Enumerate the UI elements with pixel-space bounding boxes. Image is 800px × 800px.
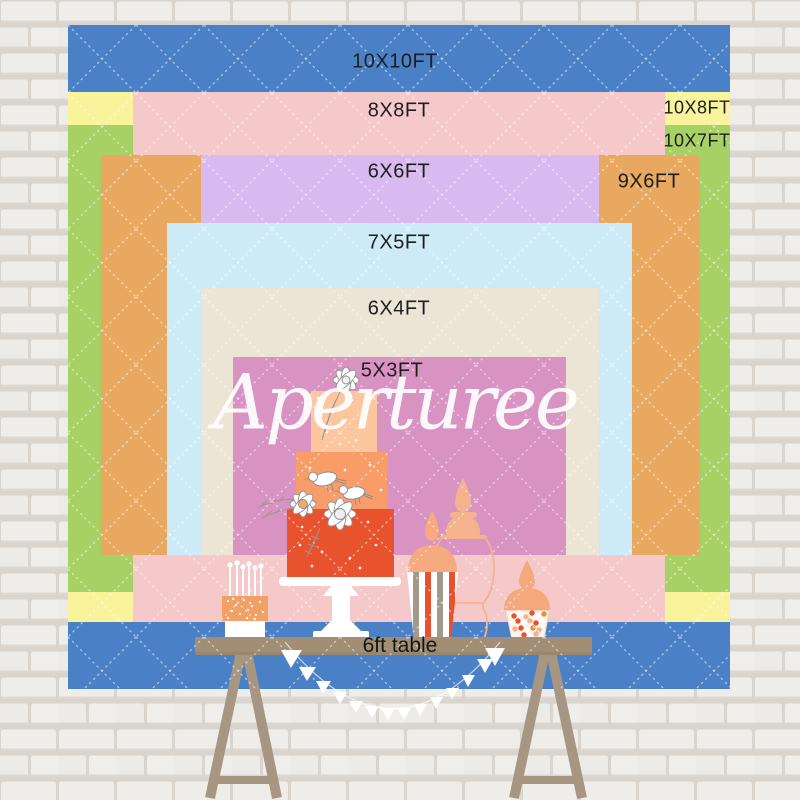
backdrop-size-chart: { "backdrop": { "brand_watermark": "Aper… <box>0 0 800 800</box>
size-label-5x3ft: 5X3FT <box>361 360 424 383</box>
size-label-8x8ft: 8X8FT <box>368 100 431 123</box>
size-label-10x8ft: 10X8FT <box>663 98 730 119</box>
size-label-6x6ft: 6X6FT <box>368 161 431 184</box>
size-label-6x4ft: 6X4FT <box>368 298 431 321</box>
size-label-7x5ft: 7X5FT <box>368 232 431 255</box>
size-label-10x10ft: 10X10FT <box>352 51 438 74</box>
size-label-9x6ft: 9X6FT <box>618 171 681 194</box>
table-size-label: 6ft table <box>363 634 438 658</box>
size-label-10x7ft: 10X7FT <box>663 131 730 152</box>
